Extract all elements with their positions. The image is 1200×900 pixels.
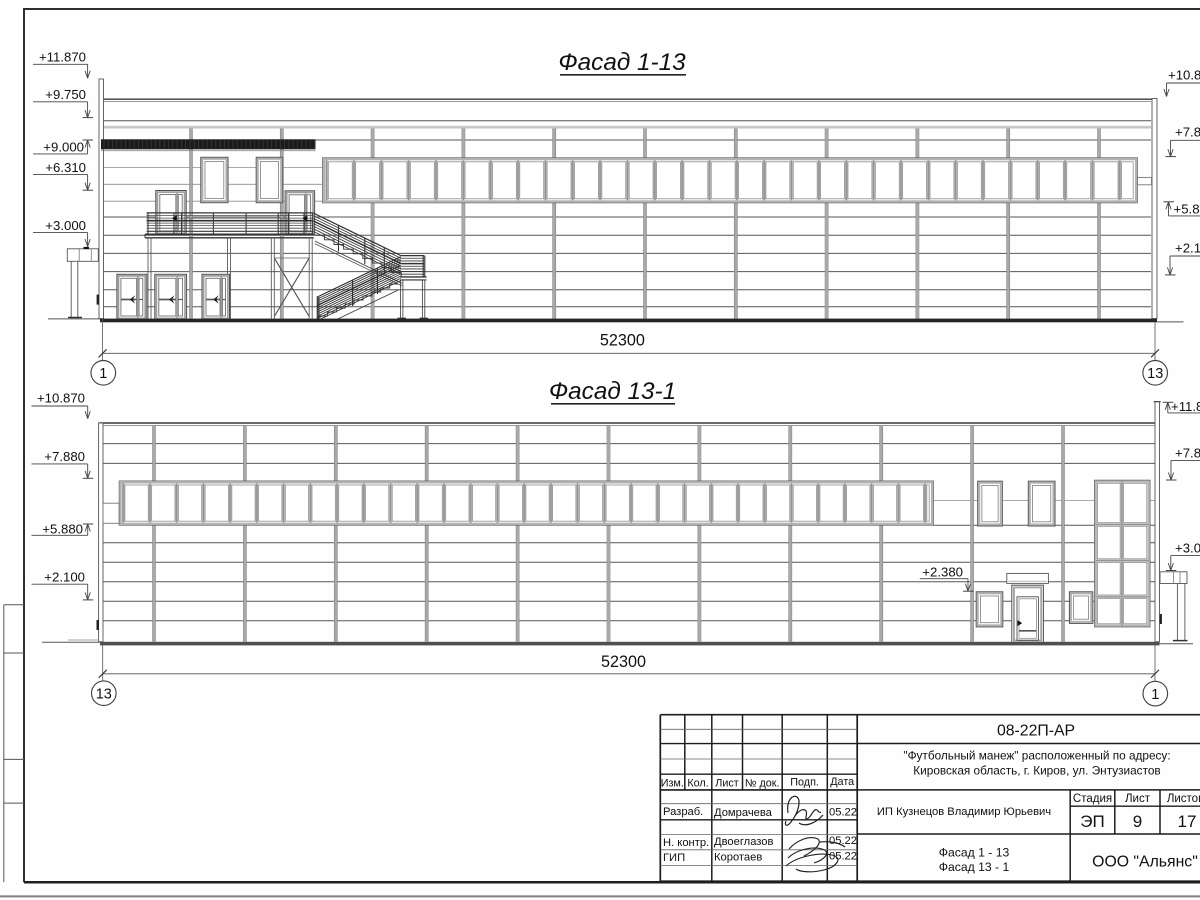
svg-text:ЭП: ЭП <box>1080 812 1104 831</box>
svg-text:Лист: Лист <box>1125 793 1151 805</box>
svg-text:+9.750: +9.750 <box>45 87 86 102</box>
svg-text:+2.380: +2.380 <box>922 565 963 580</box>
svg-text:№ док.: № док. <box>745 777 780 789</box>
svg-text:1: 1 <box>1151 687 1159 703</box>
svg-text:Фасад 1-13: Фасад 1-13 <box>558 49 686 76</box>
svg-text:ООО "Альянс": ООО "Альянс" <box>1092 854 1198 871</box>
svg-text:Изм.: Изм. <box>661 777 684 789</box>
svg-text:Двоеглазов: Двоеглазов <box>714 836 774 848</box>
svg-text:+10.870: +10.870 <box>37 391 85 406</box>
svg-text:9: 9 <box>1133 812 1142 831</box>
svg-text:+2.100: +2.100 <box>1175 241 1200 256</box>
svg-text:+3.000: +3.000 <box>45 218 86 233</box>
svg-text:52300: 52300 <box>600 332 645 350</box>
svg-text:"Футбольный манеж" расположенн: "Футбольный манеж" расположенный по адре… <box>903 749 1170 763</box>
svg-text:17: 17 <box>1178 812 1197 831</box>
svg-text:+11.870: +11.870 <box>39 50 86 65</box>
svg-text:Лист: Лист <box>715 777 739 789</box>
svg-text:+7.880: +7.880 <box>1175 446 1200 461</box>
svg-text:+7.880: +7.880 <box>1175 125 1200 140</box>
svg-text:+6.310: +6.310 <box>45 160 86 175</box>
svg-text:Фасад 13-1: Фасад 13-1 <box>549 378 676 405</box>
svg-text:ИП Кузнецов Владимир Юрьевич: ИП Кузнецов Владимир Юрьевич <box>877 806 1051 818</box>
svg-text:Листов: Листов <box>1167 793 1200 805</box>
svg-text:+5.840: +5.840 <box>1174 201 1200 216</box>
svg-text:Фасад 1 - 13: Фасад 1 - 13 <box>939 845 1010 859</box>
svg-text:+11.870: +11.870 <box>1171 399 1200 414</box>
svg-text:ГИП: ГИП <box>663 852 685 864</box>
svg-text:Стадия: Стадия <box>1073 793 1112 805</box>
svg-text:Подп.: Подп. <box>790 777 819 789</box>
svg-text:1: 1 <box>99 366 107 382</box>
svg-text:05.22: 05.22 <box>829 851 857 863</box>
svg-text:Коротаев: Коротаев <box>714 852 762 864</box>
svg-text:05.22: 05.22 <box>829 807 857 819</box>
svg-text:+2.100: +2.100 <box>44 570 85 585</box>
svg-text:+5.880: +5.880 <box>42 522 83 537</box>
svg-text:Разраб.: Разраб. <box>663 806 703 818</box>
svg-text:Н. контр.: Н. контр. <box>663 837 709 849</box>
svg-text:+10.870: +10.870 <box>1168 68 1200 83</box>
svg-text:13: 13 <box>1147 366 1163 382</box>
svg-text:+7.880: +7.880 <box>44 449 85 464</box>
svg-text:+3.000: +3.000 <box>1175 540 1200 555</box>
svg-text:Фасад 13 - 1: Фасад 13 - 1 <box>939 860 1010 874</box>
svg-text:Кировская область, г. Киров, у: Кировская область, г. Киров, ул. Энтузиа… <box>913 764 1160 778</box>
svg-text:52300: 52300 <box>601 653 646 671</box>
svg-text:13: 13 <box>96 686 112 702</box>
svg-text:Кол.: Кол. <box>687 777 708 789</box>
svg-text:+9.000: +9.000 <box>43 140 84 155</box>
svg-text:08-22П-АР: 08-22П-АР <box>997 722 1075 739</box>
svg-text:Дата: Дата <box>830 776 854 788</box>
svg-text:Домрачева: Домрачева <box>714 807 773 819</box>
